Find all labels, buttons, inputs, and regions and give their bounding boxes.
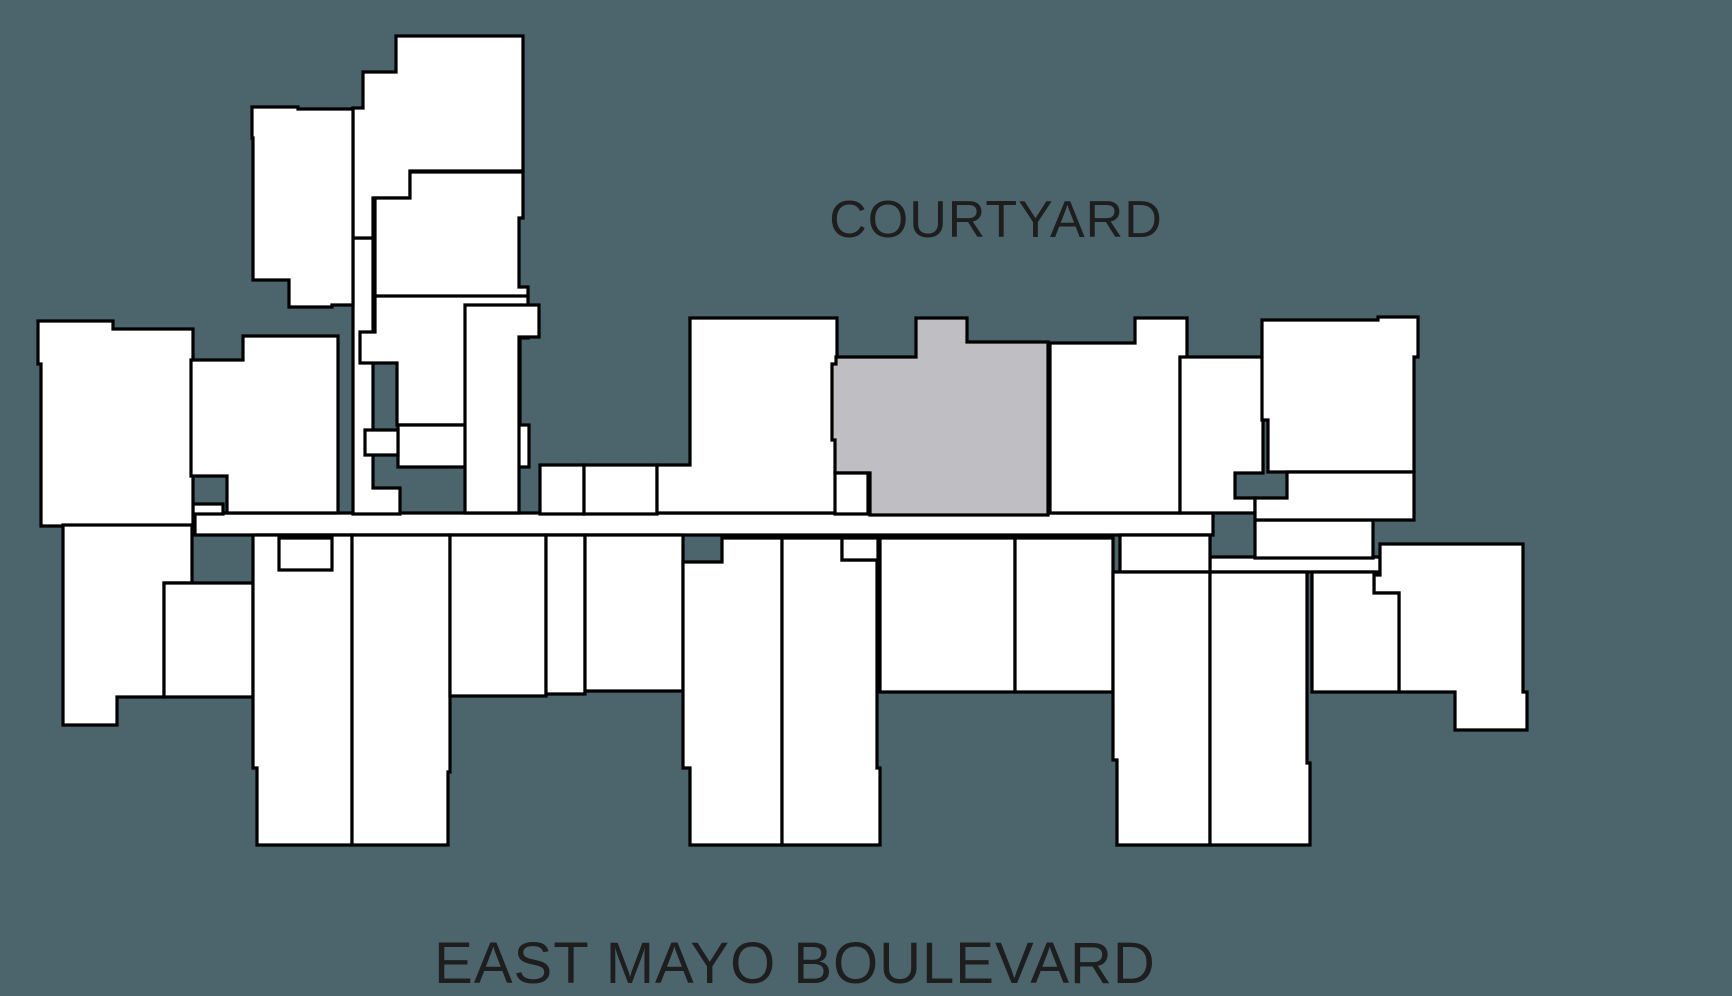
wing-annex[interactable] [365, 430, 398, 455]
courtyard-cell-b[interactable] [584, 465, 657, 514]
bottom-block-2a[interactable] [880, 538, 1015, 692]
bottom-left-unit-b[interactable] [164, 583, 253, 697]
street-label: EAST MAYO BOULEVARD [434, 931, 1156, 996]
mid-unit-4[interactable] [1050, 318, 1187, 513]
bottom-band-b[interactable] [546, 535, 585, 694]
tower-3a[interactable] [1113, 572, 1210, 845]
tower-2a[interactable] [683, 538, 782, 845]
tower-1a[interactable] [253, 535, 352, 845]
courtyard-label: COURTYARD [829, 191, 1163, 249]
bottom-block-2b[interactable] [1015, 538, 1113, 692]
bottom-block-3[interactable] [1120, 535, 1210, 572]
bottom-band-c[interactable] [585, 535, 683, 691]
mid-unit-6[interactable] [1262, 317, 1418, 472]
corridor-main [195, 513, 1213, 535]
floorplan-svg: COURTYARD EAST MAYO BOULEVARD [0, 0, 1732, 996]
corridor-connector [1255, 520, 1373, 558]
bottom-band-a[interactable] [450, 535, 546, 696]
tower-3b[interactable] [1210, 572, 1310, 845]
left-unit-upper[interactable] [252, 107, 353, 307]
highlight-notch-unit[interactable] [835, 473, 868, 514]
tower-1c[interactable] [279, 538, 332, 570]
tower-2b[interactable] [782, 538, 880, 845]
tower-2c[interactable] [842, 538, 878, 560]
corridor-tip [193, 504, 223, 514]
left-unit-west[interactable] [38, 321, 193, 526]
tower-1b[interactable] [352, 535, 450, 845]
floorplan-stage: COURTYARD EAST MAYO BOULEVARD [0, 0, 1732, 996]
courtyard-cell-a[interactable] [540, 465, 584, 514]
